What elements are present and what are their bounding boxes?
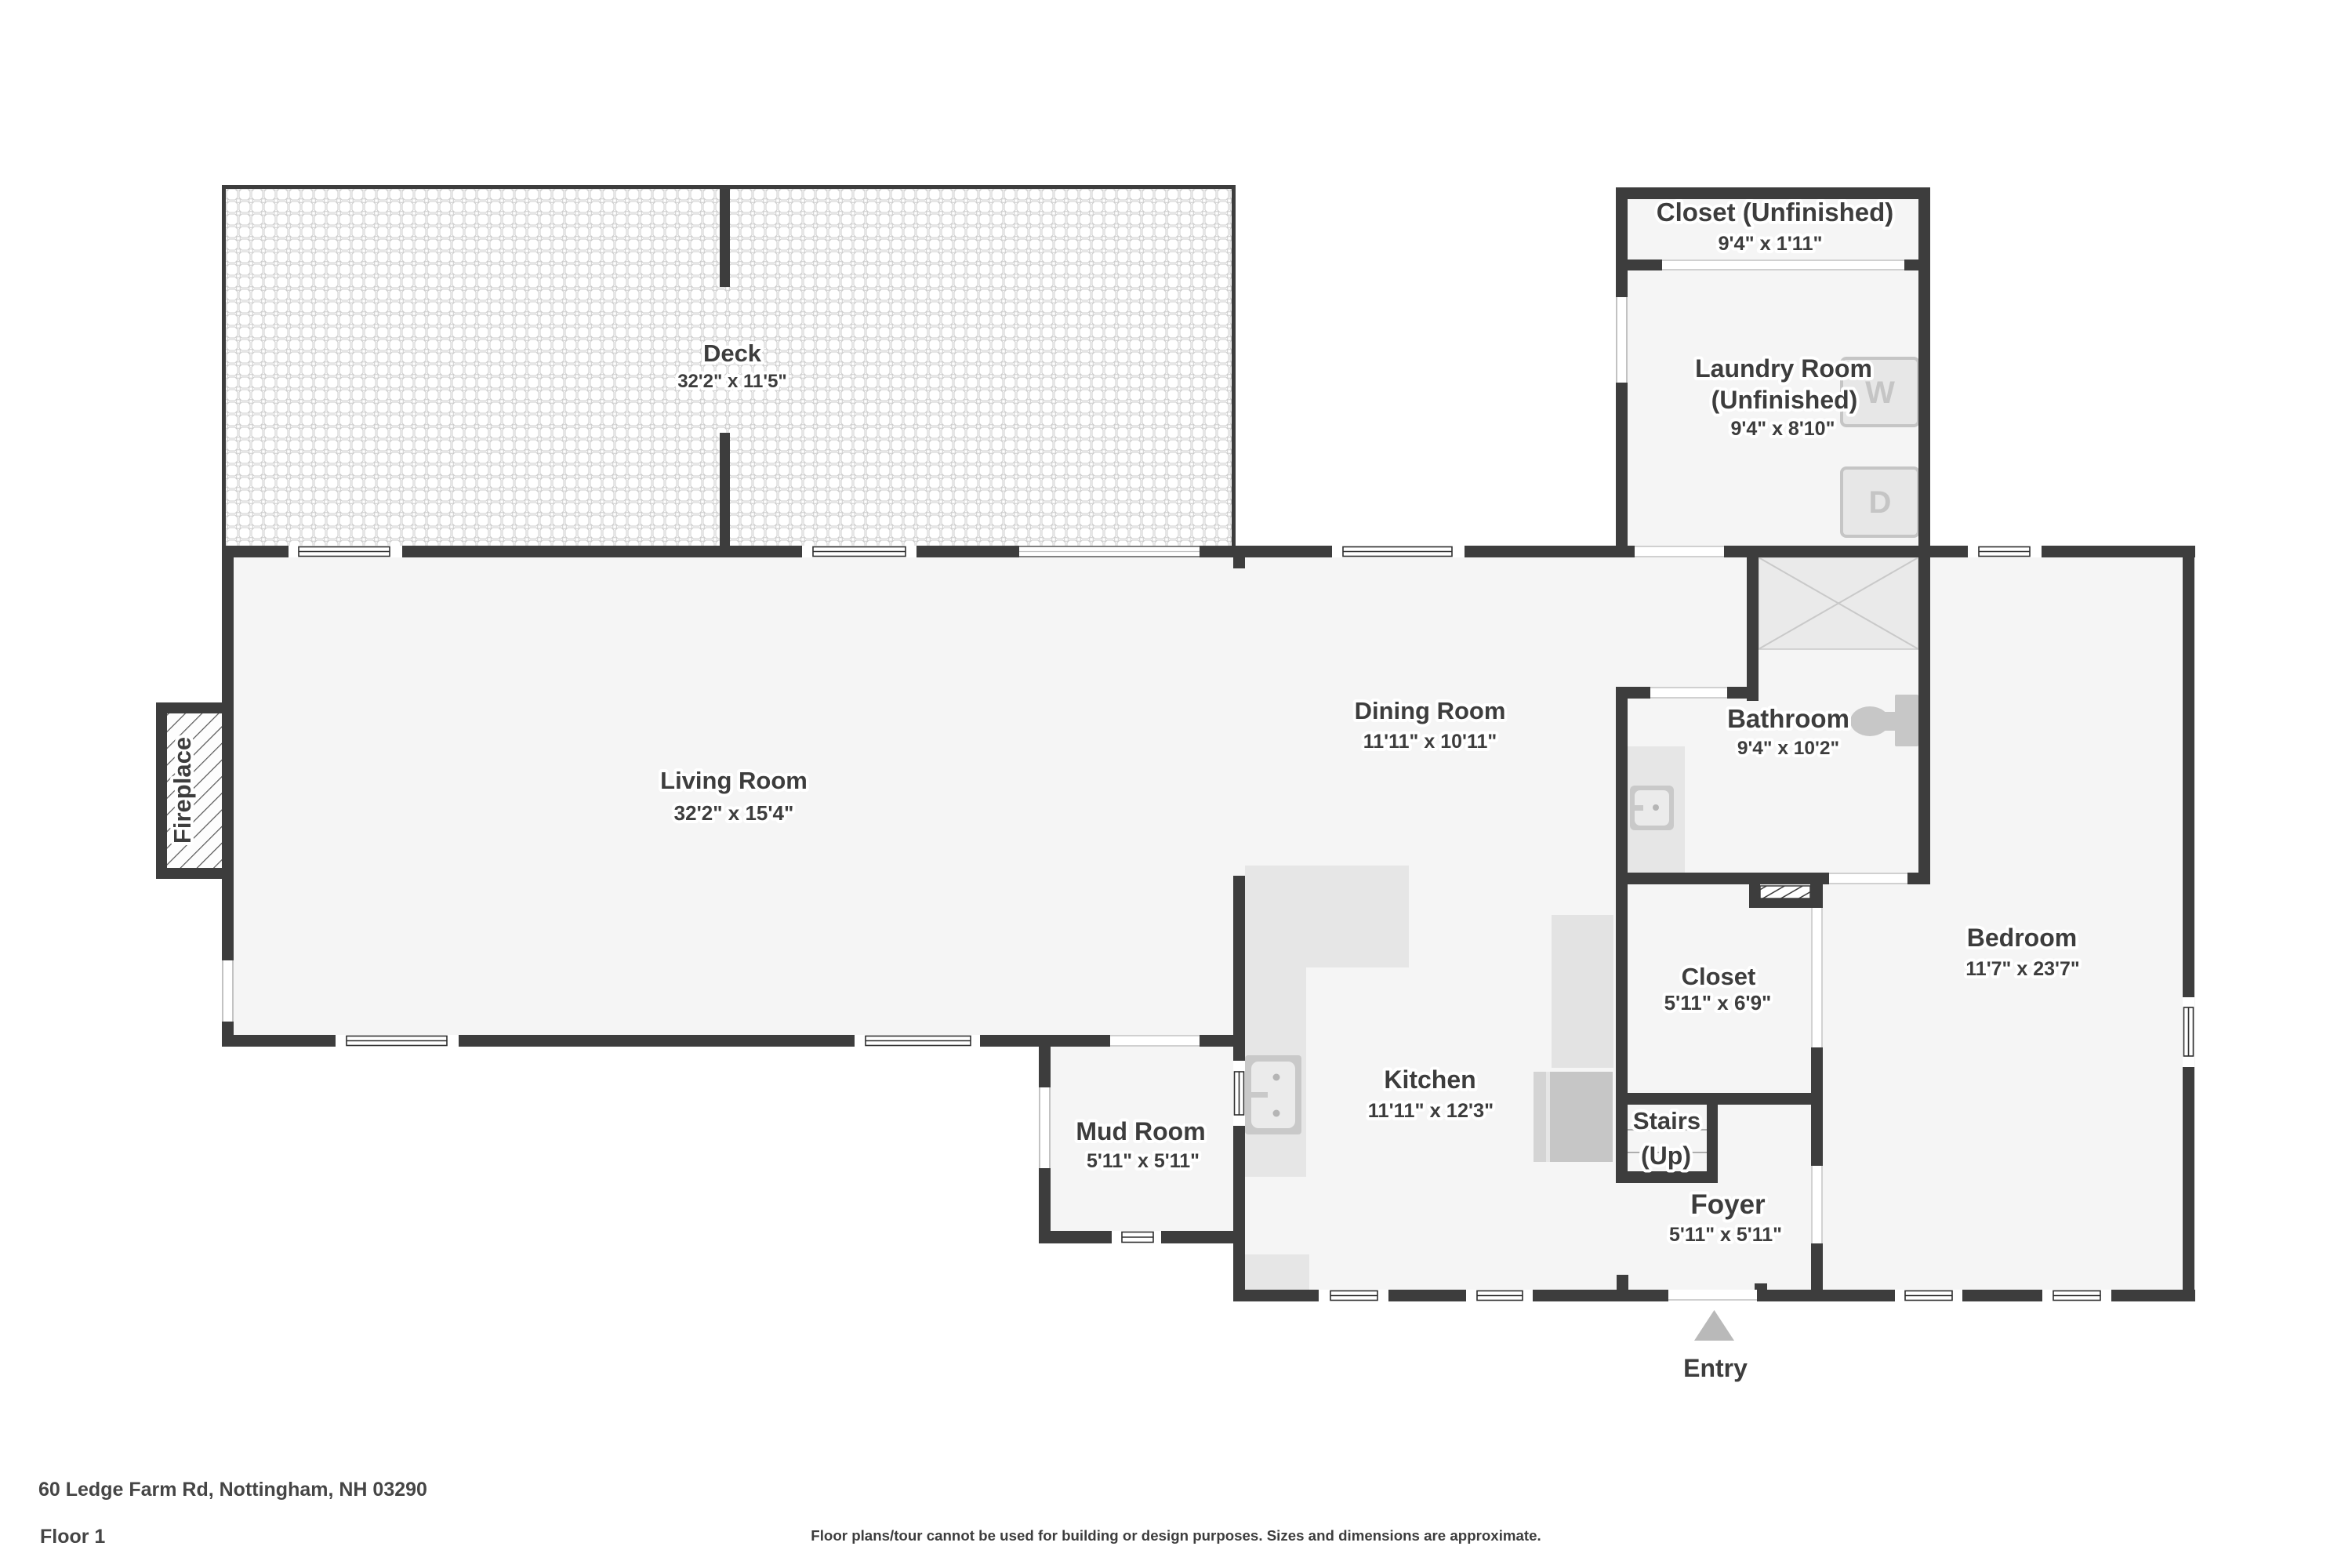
svg-text:5'11" x 6'9": 5'11" x 6'9" <box>1664 991 1772 1014</box>
svg-text:Dining Room: Dining Room <box>1355 697 1506 724</box>
svg-text:Living Room: Living Room <box>660 767 808 794</box>
svg-text:Entry: Entry <box>1683 1354 1748 1382</box>
svg-text:Closet (Unfinished): Closet (Unfinished) <box>1657 198 1894 227</box>
svg-text:Bedroom: Bedroom <box>1967 924 2077 952</box>
svg-text:Bathroom: Bathroom <box>1727 704 1849 733</box>
svg-text:11'11" x 12'3": 11'11" x 12'3" <box>1368 1100 1494 1122</box>
svg-text:(Unfinished): (Unfinished) <box>1711 386 1858 414</box>
svg-text:Foyer: Foyer <box>1690 1189 1766 1220</box>
svg-text:9'4" x 8'10": 9'4" x 8'10" <box>1731 418 1835 440</box>
svg-text:Fireplace: Fireplace <box>169 737 196 844</box>
svg-text:9'4" x 10'2": 9'4" x 10'2" <box>1737 738 1839 759</box>
svg-text:(Up): (Up) <box>1641 1142 1691 1170</box>
svg-text:Floor plans/tour cannot be use: Floor plans/tour cannot be used for buil… <box>811 1527 1541 1544</box>
svg-text:11'11" x 10'11": 11'11" x 10'11" <box>1363 731 1497 753</box>
svg-text:32'2" x 15'4": 32'2" x 15'4" <box>674 801 794 825</box>
svg-text:60 Ledge Farm Rd, Nottingham,: 60 Ledge Farm Rd, Nottingham, NH 03290 <box>38 1479 427 1501</box>
svg-text:Mud Room: Mud Room <box>1076 1117 1205 1145</box>
svg-text:Closet: Closet <box>1682 963 1756 990</box>
svg-text:Kitchen: Kitchen <box>1384 1065 1475 1094</box>
svg-text:Floor 1: Floor 1 <box>40 1526 105 1548</box>
svg-text:11'7" x 23'7": 11'7" x 23'7" <box>1965 958 2079 980</box>
svg-text:32'2" x 11'5": 32'2" x 11'5" <box>677 371 787 392</box>
svg-text:Laundry Room: Laundry Room <box>1695 354 1872 383</box>
svg-text:5'11" x 5'11": 5'11" x 5'11" <box>1087 1150 1200 1172</box>
svg-text:D: D <box>1869 485 1892 520</box>
svg-text:9'4" x 1'11": 9'4" x 1'11" <box>1718 233 1822 255</box>
svg-text:Deck: Deck <box>703 339 762 367</box>
svg-text:Stairs: Stairs <box>1633 1107 1700 1134</box>
svg-text:5'11" x 5'11": 5'11" x 5'11" <box>1669 1224 1782 1246</box>
